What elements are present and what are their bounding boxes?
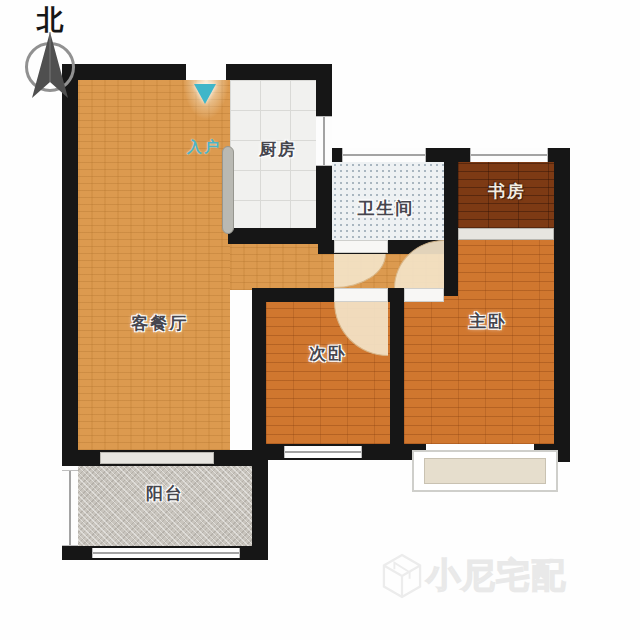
bay-window-sill [424, 458, 546, 484]
balcony-floor [78, 466, 252, 546]
wall-kitchen-bottom [228, 228, 332, 244]
second-bedroom-label: 次卧 [283, 342, 373, 365]
wall-study-left [444, 148, 458, 296]
study-window [470, 148, 548, 162]
balcony-left-window [62, 470, 78, 546]
living-room-label: 客餐厅 [100, 312, 220, 335]
study-label: 书房 [462, 180, 552, 203]
entry-arrow-icon [194, 84, 216, 104]
bathroom-door-threshold [334, 240, 388, 253]
study-sliding-door [458, 228, 554, 240]
wall-balcony-right [252, 450, 268, 560]
wall-left [62, 64, 78, 466]
second-bedroom-window [284, 446, 362, 458]
wall-top-kitchen [226, 64, 332, 80]
wall-second-left [252, 288, 266, 460]
watermark-brand-text: 小尼宅配 [426, 553, 566, 599]
bathroom-window [342, 148, 426, 162]
wall-second-master [390, 288, 404, 460]
living-room-floor [78, 80, 230, 450]
master-bedroom-door-threshold [404, 288, 444, 302]
compass: 北 [18, 2, 82, 104]
balcony-sliding-door [100, 452, 214, 464]
floorplan-canvas: 入户 客餐厅 厨房 卫生间 书房 主卧 次卧 阳台 北 小尼宅配 [0, 0, 640, 640]
bathroom-label: 卫生间 [332, 197, 440, 220]
balcony-bottom-window [92, 548, 240, 558]
entry-door-opening [186, 64, 226, 80]
kitchen-label: 厨房 [233, 138, 323, 161]
watermark-cube-icon [382, 553, 422, 599]
entry-label: 入户 [176, 138, 232, 157]
master-bedroom-floor [458, 240, 554, 444]
wall-right [554, 148, 570, 462]
balcony-label: 阳台 [105, 482, 225, 505]
second-bedroom-door-threshold [334, 288, 388, 302]
compass-needle-icon [22, 30, 78, 102]
watermark: 小尼宅配 [382, 550, 632, 602]
wall-kitchen-right-upper [316, 80, 332, 118]
master-bedroom-label: 主卧 [443, 310, 533, 333]
